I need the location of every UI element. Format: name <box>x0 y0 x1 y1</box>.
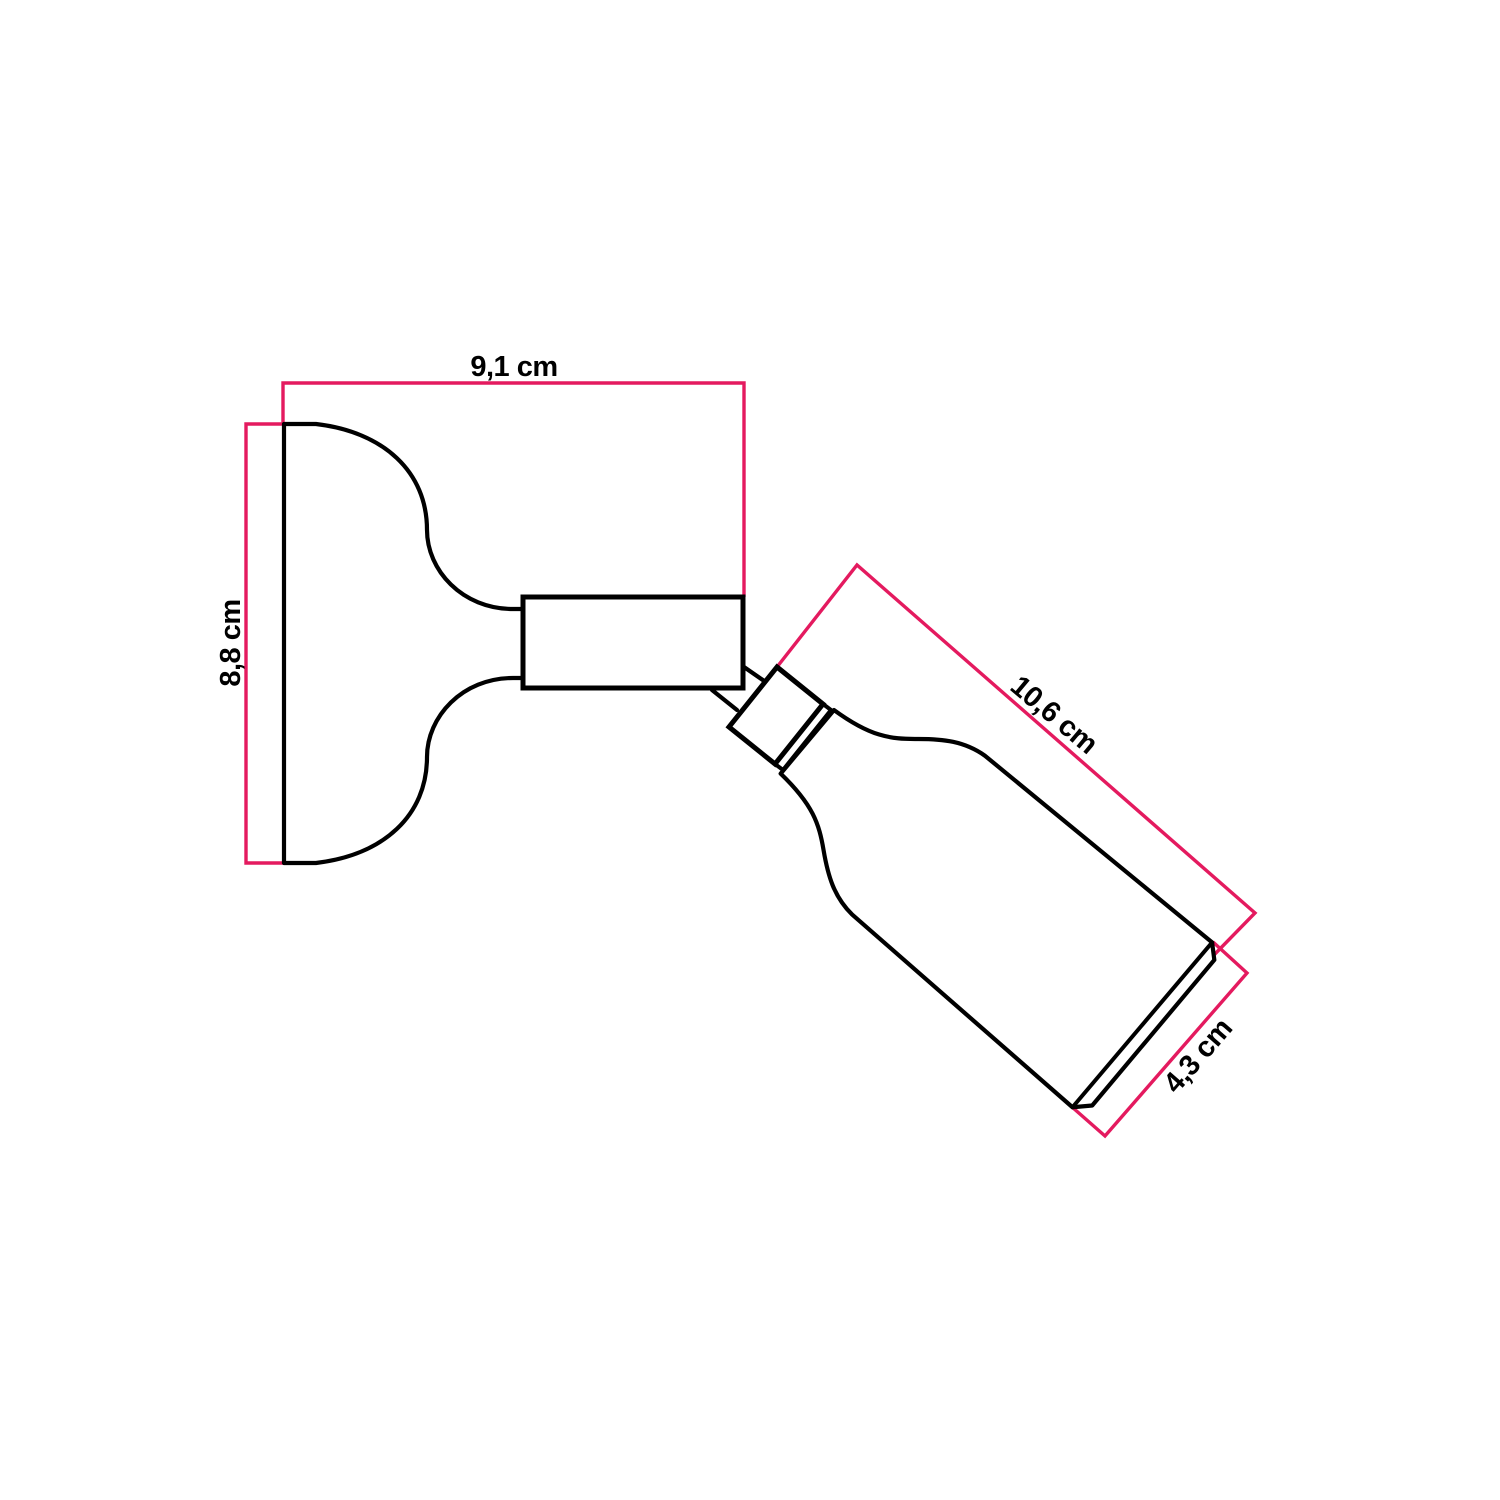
joint-cylinder <box>523 597 743 688</box>
dimension-base-width-label: 9,1 cm <box>470 351 557 383</box>
dimension-base-height-label: 8,8 cm <box>215 599 247 686</box>
wall-base-outline <box>284 424 523 863</box>
dimension-base-height-line <box>246 424 284 863</box>
dimension-drawing: 9,1 cm 8,8 cm 10,6 cm 4,3 cm <box>0 0 1500 1500</box>
dimension-lamp-length-label: 10,6 cm <box>1004 670 1103 761</box>
lamp-drawing <box>284 424 1222 1116</box>
diagram-canvas: 9,1 cm 8,8 cm 10,6 cm 4,3 cm <box>0 0 1500 1500</box>
dimension-lamp-diameter-label: 4,3 cm <box>1157 1013 1238 1100</box>
